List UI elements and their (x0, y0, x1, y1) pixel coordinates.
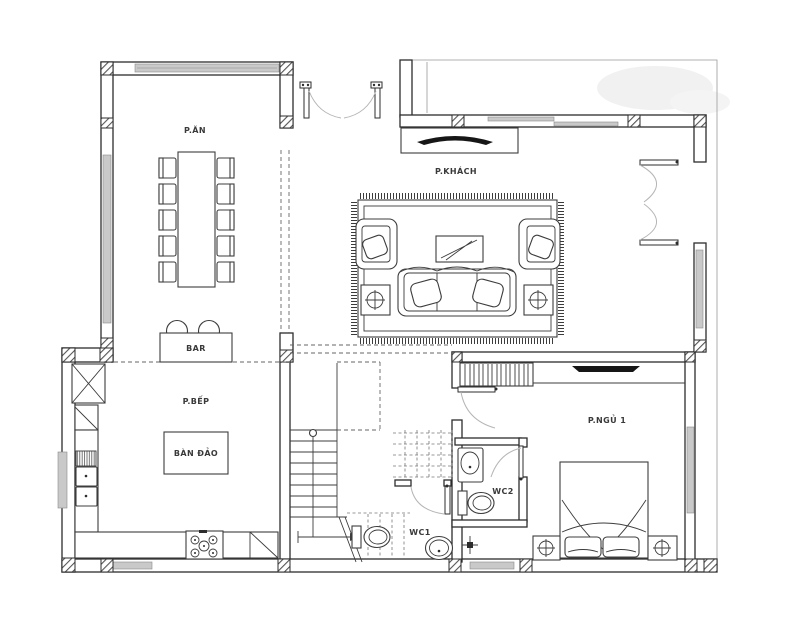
sink (426, 537, 453, 560)
sink-cabinets (76, 467, 97, 506)
toilet (458, 491, 494, 515)
label-bedroom: P.NGỦ 1 (588, 413, 626, 425)
dining-set (159, 152, 234, 287)
floor-plan-drawing: P.ĂN P.KHÁCH P.BẾP BÀN ĐẢO BAR P.NGỦ 1 W… (0, 0, 800, 625)
side-table (524, 285, 553, 315)
label-wc2: WC2 (492, 487, 513, 496)
label-dining: P.ĂN (184, 124, 206, 135)
label-kitchen: P.BẾP (183, 394, 210, 406)
label-wc1: WC1 (409, 528, 430, 537)
label-island: BÀN ĐẢO (174, 447, 218, 458)
bedroom-tv (572, 366, 640, 372)
refrigerator (72, 364, 105, 403)
watermark (597, 66, 730, 114)
stair-direction-arrow (298, 531, 359, 543)
wardrobe (460, 363, 533, 386)
nightstand (648, 536, 677, 560)
dish-rack (76, 451, 96, 466)
living-double-door (640, 160, 679, 245)
kitchen-fixtures (72, 364, 278, 559)
armchair (519, 219, 560, 269)
armchair (356, 219, 397, 269)
nightstand (533, 536, 560, 560)
living-set (354, 128, 561, 341)
bed (560, 462, 648, 558)
corner-cabinet (75, 405, 98, 430)
pillow (603, 537, 639, 557)
entry-double-door (300, 82, 382, 118)
label-bar: BAR (186, 344, 206, 353)
side-table (361, 285, 390, 315)
floor-plan-page: P.ĂN P.KHÁCH P.BẾP BÀN ĐẢO BAR P.NGỦ 1 W… (0, 0, 800, 625)
toilet (352, 526, 390, 548)
tap-symbol (462, 536, 478, 554)
label-living: P.KHÁCH (435, 165, 477, 176)
bedroom-door (458, 387, 498, 428)
wc2-door (491, 446, 523, 481)
coffee-table (436, 236, 483, 262)
sink (458, 448, 483, 482)
bar-counter (160, 321, 232, 363)
sofa (398, 267, 516, 316)
dining-table (178, 152, 215, 287)
stove (186, 530, 223, 559)
wc1-door (411, 485, 450, 515)
bedroom-set (460, 363, 685, 560)
kitchen-counter-bottom (75, 532, 278, 558)
pillow (565, 537, 601, 557)
